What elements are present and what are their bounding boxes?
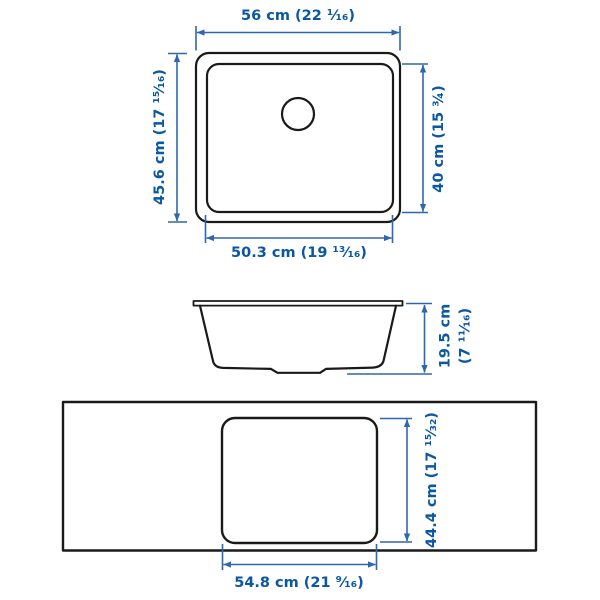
dimension-text: 44.4 cm (17 ¹⁵⁄₃₂)	[423, 412, 443, 548]
sink-top-view	[196, 53, 400, 222]
cutout-width-dimension	[223, 544, 377, 570]
sink-rim-profile	[194, 301, 403, 306]
diagram-linework	[0, 0, 600, 600]
cutout-height-label: 44.4 cm (17 ¹⁵⁄₃₂)	[423, 412, 443, 548]
top-view-width-label: 56 cm (22 ¹⁄₁₆)	[241, 7, 355, 27]
drain-hole-outline	[282, 98, 314, 130]
top-view-height-dimension	[168, 54, 187, 223]
dimension-text: 19.5 cm	[436, 304, 456, 369]
top-view-height-label: 45.6 cm (17 ¹⁵⁄₁₆)	[151, 69, 171, 205]
countertop-cutout-view	[63, 402, 536, 551]
top-view-inner-height-dimension	[402, 64, 428, 213]
dimension-text: 40 cm (15 ¾)	[430, 85, 450, 192]
dimension-text: 50.3 cm (19 ¹³⁄₁₆)	[231, 244, 367, 264]
top-view-width-dimension	[196, 26, 400, 51]
top-view-inner-width-dimension	[206, 215, 393, 243]
sink-body-profile	[200, 306, 396, 373]
dimension-text: 54.8 cm (21 ⁹⁄₁₆)	[234, 574, 364, 594]
sink-bowl-outline	[207, 64, 393, 212]
cutout-height-dimension	[380, 419, 412, 543]
sink-outer-rim-outline	[196, 53, 400, 222]
sink-side-view	[194, 301, 403, 373]
countertop-outline	[63, 402, 536, 551]
top-view-inner-width-label: 50.3 cm (19 ¹³⁄₁₆)	[231, 244, 367, 264]
dimension-text: (7 ¹¹⁄₁₆)	[456, 304, 476, 369]
side-view-height-label: 19.5 cm (7 ¹¹⁄₁₆)	[436, 304, 475, 369]
product-dimension-diagram: 56 cm (22 ¹⁄₁₆) 45.6 cm (17 ¹⁵⁄₁₆) 40 cm…	[0, 0, 600, 600]
top-view-inner-height-label: 40 cm (15 ¾)	[430, 85, 450, 192]
dimension-text: 56 cm (22 ¹⁄₁₆)	[241, 7, 355, 27]
cutout-outline	[222, 418, 377, 543]
dimension-text: 45.6 cm (17 ¹⁵⁄₁₆)	[151, 69, 171, 205]
cutout-width-label: 54.8 cm (21 ⁹⁄₁₆)	[234, 574, 364, 594]
